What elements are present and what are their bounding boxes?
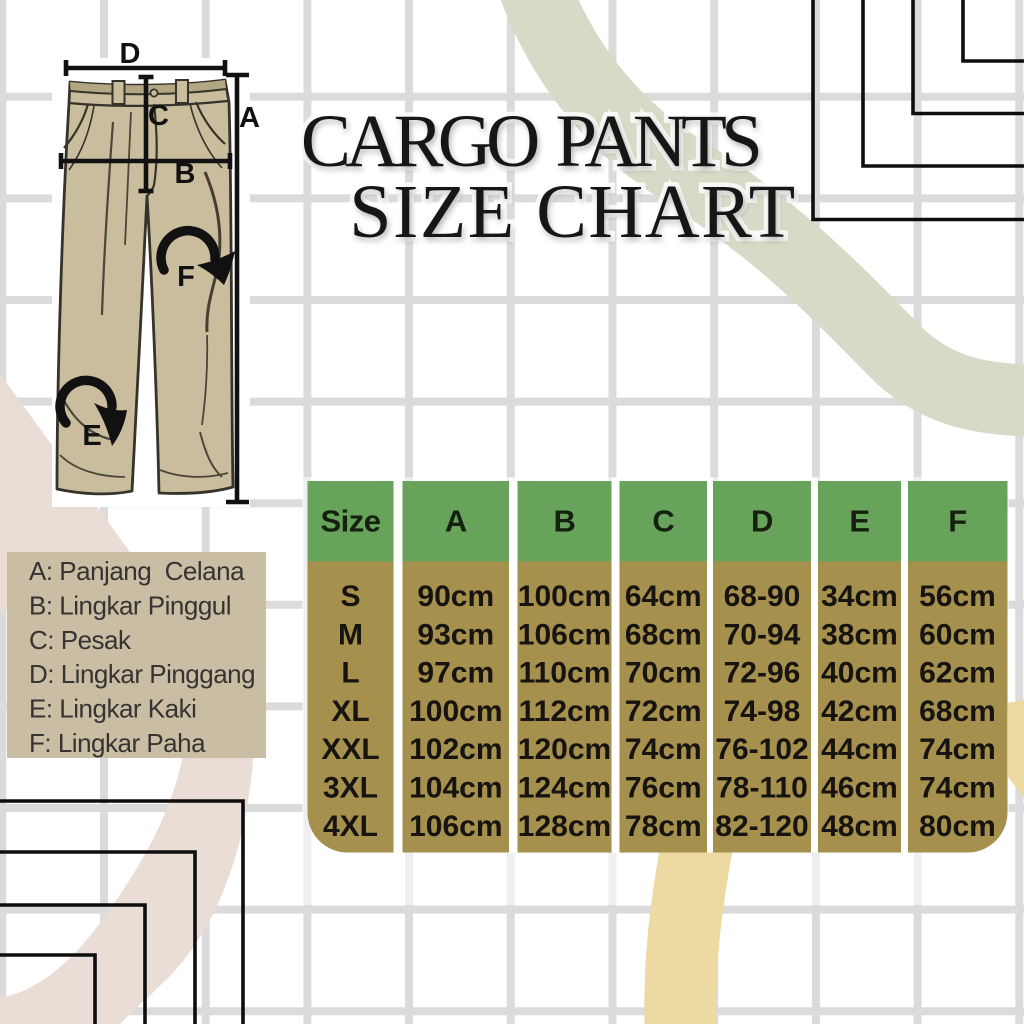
svg-text:72-96: 72-96 (724, 657, 801, 690)
svg-text:56cm: 56cm (919, 580, 996, 613)
svg-text:62cm: 62cm (919, 657, 996, 690)
svg-text:70cm: 70cm (625, 657, 702, 690)
svg-text:44cm: 44cm (821, 733, 898, 766)
svg-text:97cm: 97cm (417, 657, 494, 690)
svg-text:C: Pesak: C: Pesak (29, 625, 132, 655)
svg-text:124cm: 124cm (518, 772, 611, 805)
svg-text:D: Lingkar Pinggang: D: Lingkar Pinggang (29, 659, 255, 689)
svg-text:106cm: 106cm (409, 810, 502, 843)
svg-text:68cm: 68cm (625, 618, 702, 651)
svg-text:F: F (948, 504, 966, 539)
svg-text:SIZE CHART: SIZE CHART (349, 170, 796, 254)
svg-text:78-110: 78-110 (716, 772, 808, 805)
svg-text:90cm: 90cm (417, 580, 494, 613)
svg-text:68cm: 68cm (919, 695, 996, 728)
svg-text:102cm: 102cm (409, 733, 502, 766)
svg-text:76-102: 76-102 (715, 733, 808, 766)
svg-text:128cm: 128cm (518, 810, 611, 843)
svg-text:70-94: 70-94 (724, 618, 801, 651)
svg-text:XXL: XXL (321, 733, 379, 766)
svg-text:78cm: 78cm (625, 810, 702, 843)
svg-text:3XL: 3XL (323, 772, 378, 805)
svg-text:S: S (340, 580, 360, 613)
svg-text:B: B (554, 504, 576, 539)
svg-text:34cm: 34cm (821, 580, 898, 613)
svg-text:60cm: 60cm (919, 618, 996, 651)
svg-text:A: Panjang Celana: A: Panjang Celana (29, 556, 245, 586)
svg-text:Size: Size (320, 504, 380, 539)
svg-text:93cm: 93cm (417, 618, 494, 651)
svg-text:C: C (148, 100, 169, 132)
svg-text:74cm: 74cm (919, 733, 996, 766)
svg-text:74cm: 74cm (625, 733, 702, 766)
svg-text:XL: XL (331, 695, 369, 728)
svg-text:110cm: 110cm (519, 657, 611, 690)
svg-text:F: Lingkar Paha: F: Lingkar Paha (29, 728, 206, 758)
svg-text:76cm: 76cm (625, 772, 702, 805)
svg-text:E: E (849, 504, 869, 539)
svg-text:A: A (239, 102, 260, 134)
svg-text:D: D (751, 504, 773, 539)
svg-text:64cm: 64cm (625, 580, 702, 613)
svg-text:74-98: 74-98 (724, 695, 801, 728)
svg-text:80cm: 80cm (919, 810, 996, 843)
svg-text:46cm: 46cm (821, 772, 898, 805)
svg-text:E: Lingkar Kaki: E: Lingkar Kaki (29, 694, 196, 724)
svg-text:F: F (177, 261, 195, 293)
svg-text:4XL: 4XL (323, 810, 378, 843)
svg-text:L: L (341, 657, 359, 690)
svg-text:106cm: 106cm (518, 618, 611, 651)
svg-text:B: B (175, 158, 196, 190)
svg-text:40cm: 40cm (821, 657, 898, 690)
svg-text:100cm: 100cm (518, 580, 611, 613)
svg-text:C: C (652, 504, 674, 539)
svg-text:68-90: 68-90 (724, 580, 801, 613)
svg-text:120cm: 120cm (518, 733, 611, 766)
svg-text:112cm: 112cm (519, 695, 611, 728)
svg-text:E: E (82, 420, 101, 452)
svg-text:A: A (445, 504, 467, 539)
svg-text:104cm: 104cm (409, 772, 502, 805)
svg-text:B: Lingkar Pinggul: B: Lingkar Pinggul (29, 590, 231, 620)
svg-text:42cm: 42cm (821, 695, 898, 728)
svg-text:38cm: 38cm (821, 618, 898, 651)
svg-text:72cm: 72cm (625, 695, 702, 728)
svg-text:48cm: 48cm (821, 810, 898, 843)
svg-text:D: D (120, 38, 141, 70)
svg-text:100cm: 100cm (409, 695, 502, 728)
svg-text:74cm: 74cm (919, 772, 996, 805)
svg-text:82-120: 82-120 (715, 810, 808, 843)
svg-text:M: M (338, 618, 363, 651)
